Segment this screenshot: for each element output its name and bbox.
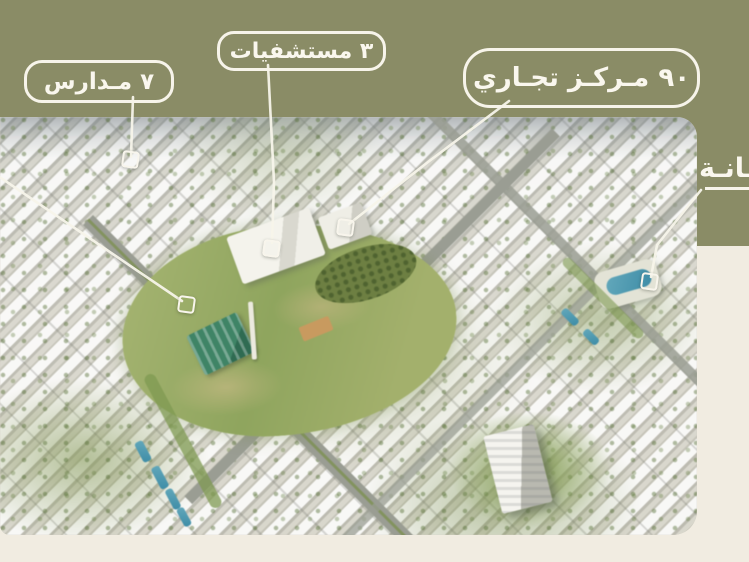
hospitals-map-marker <box>262 239 281 258</box>
callout-hospitals: ٣ مستشفيات <box>217 31 386 71</box>
city-texture <box>0 117 697 535</box>
schools-map-marker <box>121 150 140 169</box>
callout-clipped-right: ـانـة <box>699 150 749 186</box>
callout-schools-label: ٧ مـدارس <box>44 69 154 95</box>
playground-court <box>298 316 333 342</box>
callout-commercial: ٩٠ مـركـز تجـاري <box>463 48 700 108</box>
pool-map-marker <box>640 272 659 291</box>
callout-commercial-label: ٩٠ مـركـز تجـاري <box>473 63 690 93</box>
commercial-map-marker <box>336 218 355 237</box>
infographic-slide: ٧ مـدارس ٣ مستشفيات ٩٠ مـركـز تجـاري ـان… <box>0 0 749 562</box>
callout-schools: ٧ مـدارس <box>24 60 174 103</box>
mosque-building <box>186 312 256 376</box>
callout-clipped-underline <box>705 187 749 190</box>
callout-clipped-right-label: ـانـة <box>699 153 749 184</box>
mosque-map-marker <box>177 295 196 314</box>
callout-hospitals-label: ٣ مستشفيات <box>230 39 374 64</box>
aerial-map-image <box>0 117 697 535</box>
